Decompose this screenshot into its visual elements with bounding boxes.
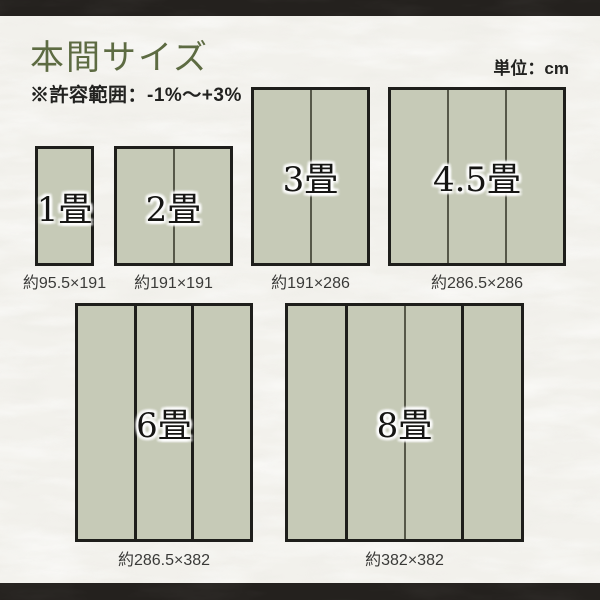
mat-diagram-3jo: 3畳 — [251, 87, 370, 266]
mat-diagram-2jo: 2畳 — [114, 146, 233, 266]
mat-divider — [461, 306, 464, 539]
mat-dimensions-6jo: 約286.5×382 — [74, 546, 254, 570]
mat-label-45jo: 4.5畳 — [433, 152, 521, 201]
mat-label-2jo: 2畳 — [146, 182, 202, 231]
mat-label-1jo: 1畳 — [37, 182, 93, 231]
unit-label: 単位：cm — [493, 54, 569, 79]
mat-diagram-1jo: 1畳 — [35, 146, 94, 266]
mat-dimensions-8jo: 約382×382 — [314, 546, 495, 570]
mat-divider — [345, 306, 348, 539]
mat-diagram-45jo: 4.5畳 — [388, 87, 566, 266]
tatami-size-chart: 本間サイズ ※許容範囲：-1%〜+3% 単位：cm 1畳 約95.5×191 2… — [0, 0, 600, 600]
mat-label-3jo: 3畳 — [283, 152, 339, 201]
mat-dimensions-3jo: 約191×286 — [220, 269, 401, 293]
mat-diagram-8jo: 8畳 — [285, 303, 524, 542]
tolerance-note: ※許容範囲：-1%〜+3% — [30, 80, 242, 107]
page-title: 本間サイズ — [30, 40, 209, 76]
mat-label-6jo: 6畳 — [136, 398, 192, 447]
bottom-bar-texture — [0, 583, 600, 600]
mat-diagram-6jo: 6畳 — [75, 303, 253, 542]
mat-dimensions-45jo: 約286.5×286 — [387, 269, 567, 293]
mat-label-8jo: 8畳 — [377, 398, 433, 447]
top-bar-texture — [0, 0, 600, 16]
